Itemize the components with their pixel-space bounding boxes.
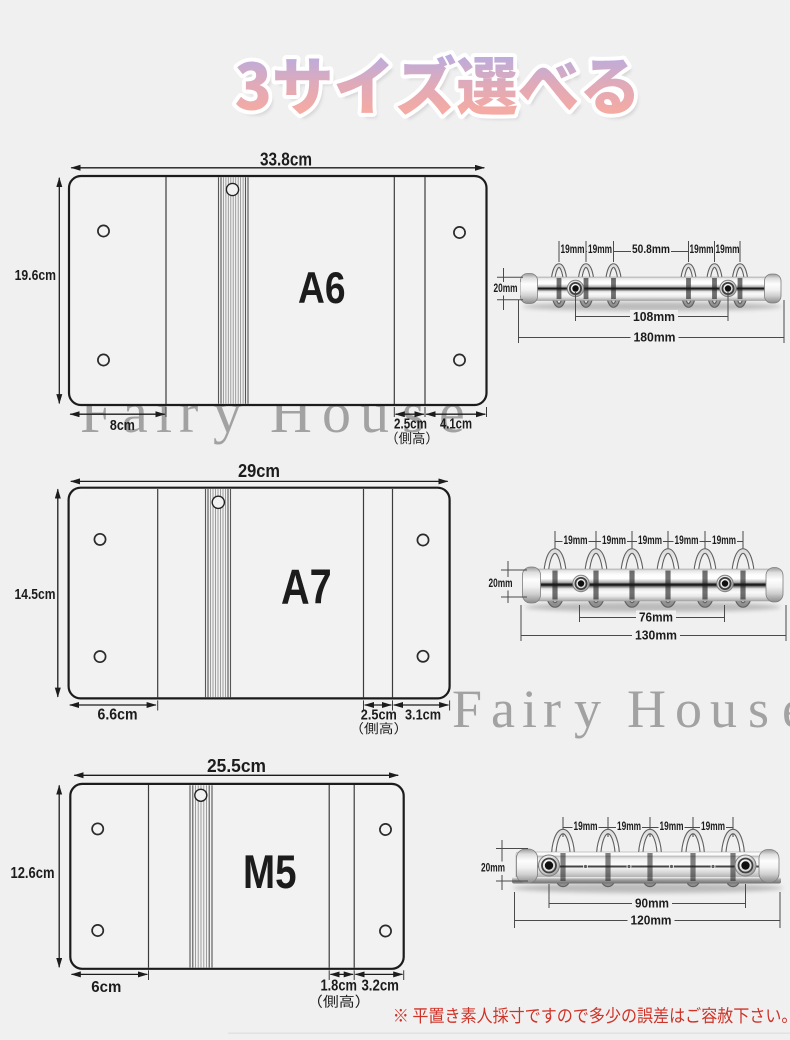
svg-text:108mm: 108mm [633, 310, 675, 324]
svg-text:19mm: 19mm [574, 821, 598, 833]
svg-text:19.6cm: 19.6cm [15, 267, 56, 284]
svg-text:6.6cm: 6.6cm [98, 707, 138, 724]
svg-text:19mm: 19mm [716, 244, 740, 256]
svg-text:19mm: 19mm [701, 821, 725, 833]
svg-text:76mm: 76mm [639, 611, 673, 625]
svg-text:6cm: 6cm [91, 979, 121, 996]
svg-text:20mm: 20mm [494, 283, 518, 295]
svg-text:180mm: 180mm [634, 331, 676, 345]
svg-text:8cm: 8cm [110, 417, 135, 434]
svg-text:14.5cm: 14.5cm [15, 586, 56, 603]
svg-text:3.1cm: 3.1cm [405, 707, 441, 724]
svg-text:12.6cm: 12.6cm [11, 865, 55, 882]
svg-text:19mm: 19mm [660, 821, 684, 833]
svg-text:19mm: 19mm [602, 535, 626, 547]
svg-text:120mm: 120mm [631, 914, 672, 928]
svg-text:20mm: 20mm [481, 863, 505, 875]
svg-text:19mm: 19mm [617, 821, 641, 833]
svg-text:M5: M5 [243, 845, 297, 898]
svg-text:25.5cm: 25.5cm [207, 756, 266, 776]
svg-text:19mm: 19mm [564, 535, 588, 547]
svg-text:29cm: 29cm [238, 461, 280, 481]
svg-text:19mm: 19mm [690, 244, 714, 256]
svg-text:1.8cm: 1.8cm [320, 978, 357, 995]
svg-text:19mm: 19mm [638, 535, 662, 547]
svg-text:A6: A6 [298, 264, 346, 313]
svg-text:19mm: 19mm [712, 535, 736, 547]
svg-text:50.8mm: 50.8mm [632, 244, 670, 256]
svg-text:A7: A7 [281, 561, 332, 615]
svg-text:19mm: 19mm [675, 535, 699, 547]
svg-text:19mm: 19mm [588, 244, 612, 256]
svg-text:20mm: 20mm [489, 578, 513, 590]
svg-text:4.1cm: 4.1cm [440, 416, 472, 433]
svg-text:130mm: 130mm [635, 629, 677, 643]
svg-text:90mm: 90mm [635, 897, 669, 911]
svg-text:19mm: 19mm [561, 244, 585, 256]
svg-text:2.5cm: 2.5cm [361, 707, 397, 724]
svg-text:33.8cm: 33.8cm [260, 150, 312, 170]
svg-text:2.5cm: 2.5cm [394, 416, 427, 433]
svg-text:3.2cm: 3.2cm [361, 978, 399, 995]
